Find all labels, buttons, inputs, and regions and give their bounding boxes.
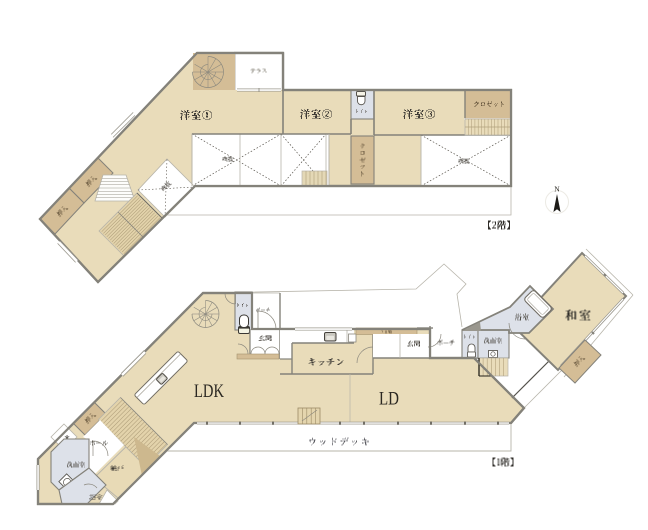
svg-text:N: N (554, 185, 560, 194)
svg-text:LDK: LDK (194, 381, 224, 402)
svg-text:LD: LD (379, 390, 399, 410)
